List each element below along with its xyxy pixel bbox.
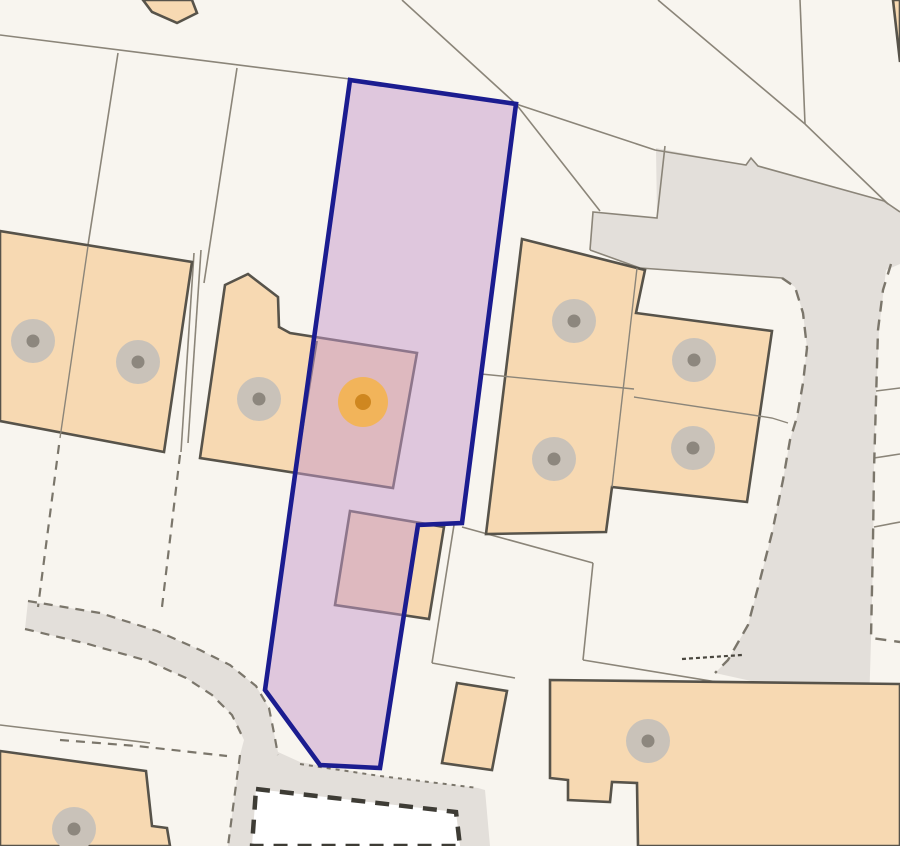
selected-property-marker (355, 394, 371, 410)
property-point-marker (688, 354, 701, 367)
property-point-marker (687, 442, 700, 455)
property-point-marker (642, 735, 655, 748)
property-point-marker (27, 335, 40, 348)
property-point-marker (568, 315, 581, 328)
property-point-marker (68, 823, 81, 836)
property-point-marker (253, 393, 266, 406)
map-canvas[interactable] (0, 0, 900, 846)
map-drawing (0, 0, 900, 846)
property-point-marker (132, 356, 145, 369)
property-point-marker (548, 453, 561, 466)
